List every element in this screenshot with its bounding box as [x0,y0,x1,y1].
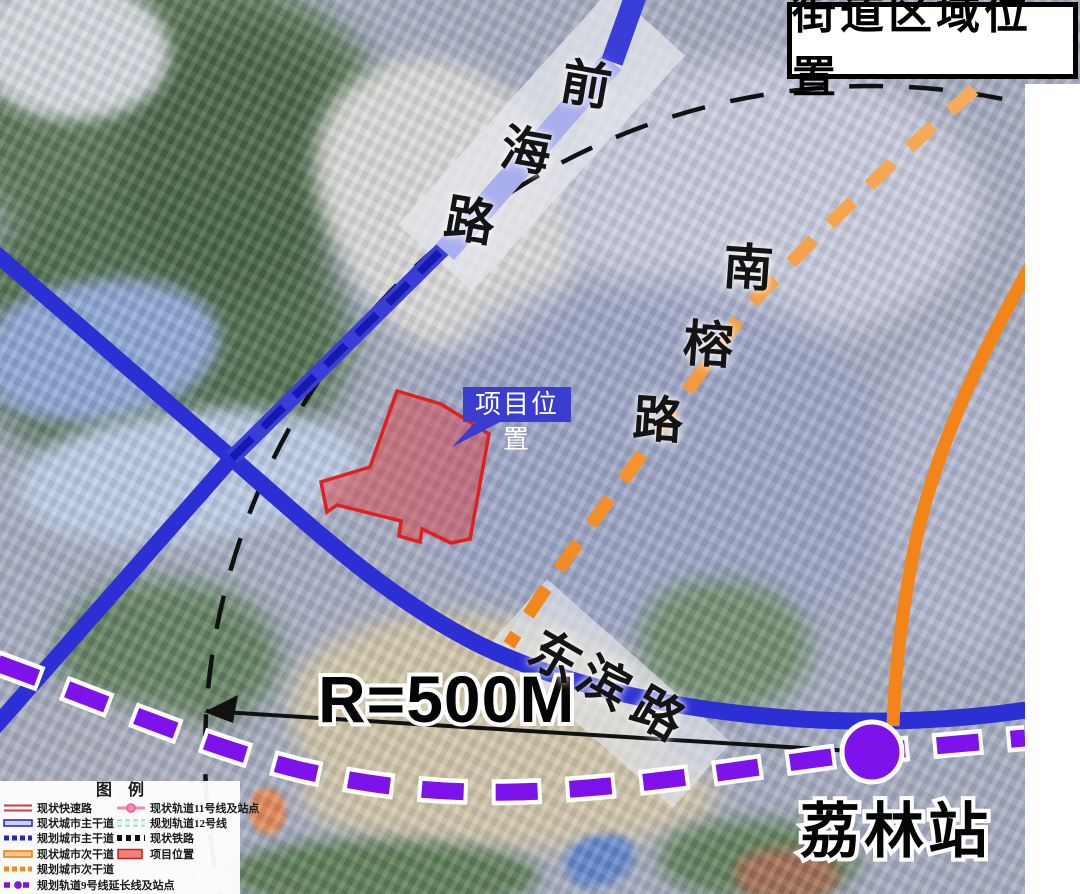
legend-item: 现状城市次干道 [3,846,116,861]
black-dashed-railway-line-icon [116,832,146,844]
legend-item-label: 现状城市主干道 [37,815,114,831]
legend-item-label: 规划城市次干道 [37,861,114,877]
orange-dashed-road-line-icon [3,863,33,875]
station-lilin-circle [842,722,902,782]
legend-item-label: 规划城市主干道 [37,830,114,846]
road-label-nanrong-char: 榕 [679,316,737,374]
pink-metro-line-station-icon [116,802,146,814]
legend-item: 项目位置 [116,846,259,861]
legend-item: 现状快速路 [3,800,116,815]
map-title-text: 街道区域位置 [792,0,1073,105]
legend-title: 图 例 [0,781,240,800]
map-right-margin [1025,84,1080,894]
legend: 图 例 现状快速路 现状城市主干道 规划城市主干道 现状城市次干道 [0,781,240,894]
road-label-nanrong-char: 南 [719,239,777,297]
purple-metro-line-station-icon [3,879,33,891]
blue-dashed-road-line-icon [3,832,33,844]
planning-map: R=500M 荔林站 前 海 路 南 榕 路 东 滨 路 项目位置 街道区域位置… [0,0,1080,894]
blue-solid-road-line-icon [3,817,33,829]
legend-item: 现状铁路 [116,831,259,846]
red-expressway-line-icon [3,802,33,814]
orange-solid-road-line-icon [3,848,33,860]
legend-item-label: 项目位置 [150,846,194,862]
legend-item: 规划城市主干道 [3,831,116,846]
legend-columns: 现状快速路 现状城市主干道 规划城市主干道 现状城市次干道 规划城市次干道 [0,800,240,892]
red-filled-area-icon [116,848,146,860]
legend-item-label: 现状快速路 [37,800,92,816]
legend-item-label: 规划轨道12号线 [150,815,227,831]
road-main-west [0,252,232,458]
legend-item-label: 现状铁路 [150,830,194,846]
legend-item: 规划城市次干道 [3,862,116,877]
road-label-nanrong-char: 路 [629,391,687,449]
radius-arrow [204,695,238,723]
legend-item: 规划轨道9号线延长线及站点 [3,877,116,892]
legend-item-label: 现状轨道11号线及站点 [150,800,259,816]
legend-item: 规划轨道12号线 [116,815,259,830]
cyan-dashed-metro-line-icon [116,817,146,829]
legend-item: 现状轨道11号线及站点 [116,800,259,815]
project-location-callout: 项目位置 [463,387,571,422]
road-label-qianhai-char: 海 [495,120,558,183]
legend-left-column: 现状快速路 现状城市主干道 规划城市主干道 现状城市次干道 规划城市次干道 [0,800,116,892]
map-title: 街道区域位置 [787,2,1078,79]
legend-right-column: 现状轨道11号线及站点 规划轨道12号线 现状铁路 项目位置 [116,800,259,862]
legend-item: 现状城市主干道 [3,815,116,830]
road-orange-arc [893,250,1040,726]
road-label-qianhai-char: 路 [439,190,502,253]
legend-item-label: 规划轨道9号线延长线及站点 [37,877,175,893]
road-label-qianhai-char: 前 [555,54,618,117]
legend-item-label: 现状城市次干道 [37,846,114,862]
station-label: 荔林站 [800,798,992,865]
